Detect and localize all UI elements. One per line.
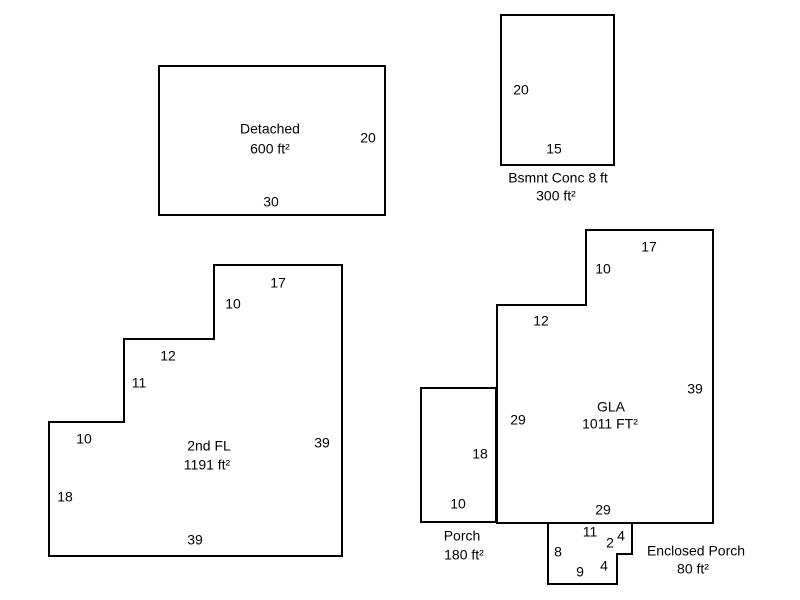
enclosed-porch-label: 2 — [606, 535, 614, 551]
porch-label: Porch — [444, 528, 481, 544]
gla-main-floor-label: 10 — [595, 261, 611, 277]
detached-garage-label: 20 — [360, 130, 376, 146]
porch-label: 18 — [472, 446, 488, 462]
second-floor-label: 1191 ft² — [184, 457, 231, 473]
second-floor-label: 18 — [57, 489, 73, 505]
enclosed-porch-label: 4 — [617, 528, 625, 544]
enclosed-porch-label: 9 — [576, 564, 584, 580]
gla-main-floor-label: 29 — [595, 502, 611, 518]
enclosed-porch-label: 8 — [554, 544, 562, 560]
second-floor-label: 39 — [187, 532, 203, 548]
gla-main-floor-label: 39 — [687, 381, 703, 397]
floorplan-sketch-page: Detached600 ft²20302015Bsmnt Conc 8 ft30… — [0, 0, 800, 600]
gla-main-floor-label: 12 — [533, 313, 549, 329]
enclosed-porch-label: 11 — [583, 524, 598, 540]
gla-main-floor-label: GLA — [597, 399, 626, 415]
porch-label: 10 — [450, 496, 466, 512]
second-floor-label: 17 — [270, 275, 286, 291]
enclosed-porch-label: 80 ft² — [677, 561, 709, 577]
second-floor-label: 2nd FL — [187, 438, 231, 454]
enclosed-porch-label: Enclosed Porch — [647, 543, 745, 559]
basement-concrete-label: 20 — [513, 82, 529, 98]
second-floor-label: 39 — [314, 435, 330, 451]
gla-main-floor-label: 29 — [510, 412, 526, 428]
gla-main-floor-label: 1011 FT² — [582, 416, 638, 432]
second-floor-label: 11 — [132, 375, 147, 391]
second-floor-label: 10 — [225, 296, 241, 312]
sketch-canvas: Detached600 ft²20302015Bsmnt Conc 8 ft30… — [0, 0, 800, 600]
basement-concrete-label: 300 ft² — [536, 188, 576, 204]
second-floor-label: 10 — [76, 431, 92, 447]
second-floor-outline — [49, 265, 342, 556]
basement-concrete-label: 15 — [546, 141, 562, 157]
basement-concrete-label: Bsmnt Conc 8 ft — [508, 170, 608, 186]
detached-garage-label: 30 — [263, 194, 279, 210]
detached-garage-label: 600 ft² — [250, 141, 290, 157]
second-floor-label: 12 — [160, 348, 176, 364]
detached-garage-label: Detached — [240, 121, 300, 137]
porch-label: 180 ft² — [444, 547, 484, 563]
enclosed-porch-label: 4 — [600, 558, 608, 574]
gla-main-floor-label: 17 — [641, 239, 657, 255]
